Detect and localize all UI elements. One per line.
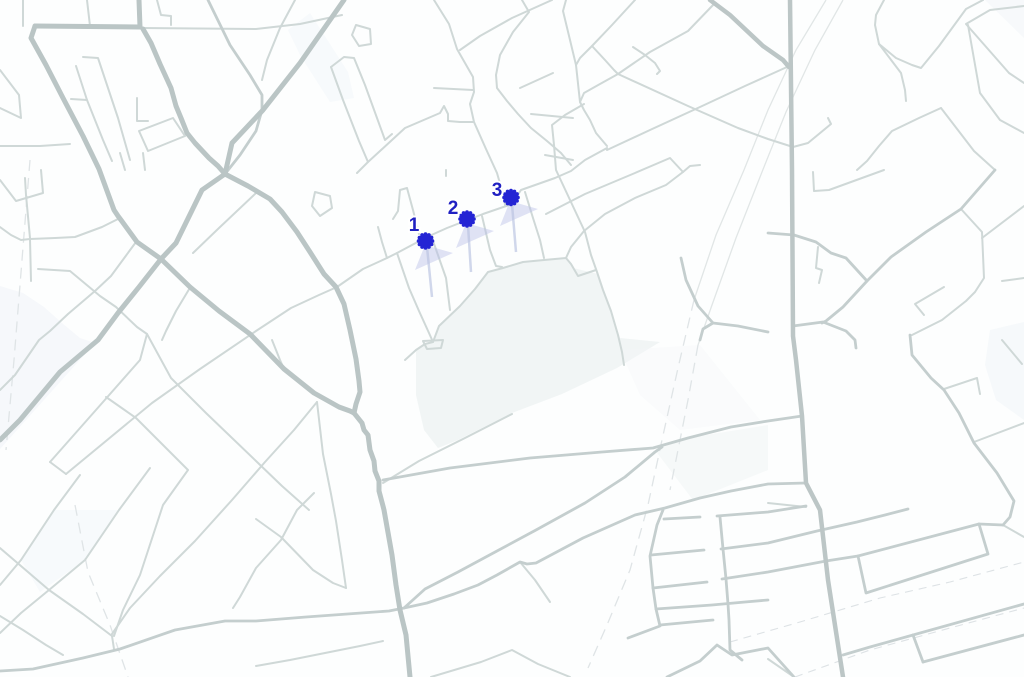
svg-text:1: 1 [409,215,420,236]
svg-text:2: 2 [448,198,459,219]
svg-text:3: 3 [492,180,503,201]
